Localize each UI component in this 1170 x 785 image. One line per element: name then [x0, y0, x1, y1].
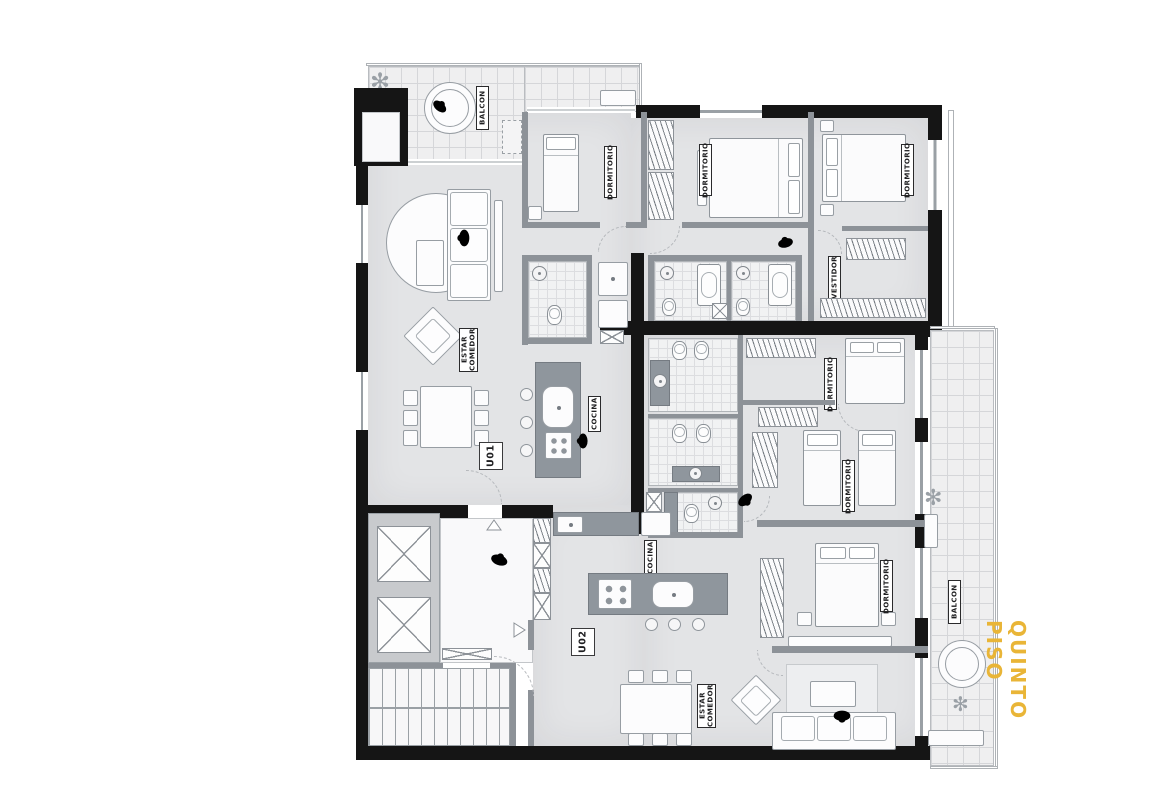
balcony-bench: [924, 514, 938, 548]
wall-segment: [587, 255, 592, 344]
wall-top: [636, 105, 942, 118]
window: [356, 372, 368, 430]
kitchen-sink: [652, 581, 694, 608]
single-bed: [858, 430, 896, 506]
duct-shaft: [533, 518, 551, 543]
bar-stool: [692, 618, 705, 631]
wardrobe: [648, 172, 674, 220]
person-figure: [572, 432, 590, 450]
pillow: [826, 138, 838, 166]
window: [928, 140, 942, 210]
balcony-console: [928, 730, 984, 746]
oven: [598, 262, 628, 296]
room-label-vestidor: VESTIDOR: [828, 256, 841, 300]
pillow: [826, 169, 838, 197]
blanket-line: [846, 356, 904, 357]
sofa-cushion: [781, 716, 815, 741]
dining-chair: [403, 390, 418, 406]
window: [915, 658, 928, 736]
shower-head: [653, 374, 667, 388]
duct-shaft: [533, 543, 551, 568]
elevator-shaft: [377, 597, 431, 653]
wall-segment: [641, 112, 647, 228]
faucet-dot: [557, 406, 561, 410]
pillow: [807, 434, 838, 446]
dining-chair: [652, 733, 668, 746]
bidet: [694, 341, 709, 360]
shower-head: [532, 266, 547, 281]
toilet: [547, 305, 562, 325]
double-bed: [815, 543, 879, 627]
duct-shaft: [712, 303, 728, 319]
shower-head: [708, 496, 722, 510]
dining-table: [620, 684, 692, 734]
bar-stool: [520, 416, 533, 429]
storage-niche: [362, 112, 400, 162]
dining-chair: [676, 733, 692, 746]
clothes-rack: [846, 238, 906, 260]
wall-segment: [743, 400, 835, 405]
bar-stool: [645, 618, 658, 631]
blanket-line: [778, 139, 779, 217]
room-label-dormitorio: DORMITORIO: [604, 146, 617, 198]
room-label-cocina: COCINA: [644, 540, 657, 576]
wardrobe: [760, 558, 784, 638]
wardrobe: [758, 407, 818, 427]
floor-plan-canvas: ✻ BALCON DORMITORIO: [0, 0, 1170, 785]
window: [356, 205, 368, 263]
blanket-line: [804, 450, 840, 451]
coffee-table: [810, 681, 856, 707]
toilet: [736, 298, 750, 316]
wall-segment: [757, 520, 928, 527]
wardrobe: [648, 120, 674, 170]
dining-chair: [676, 670, 692, 683]
bar-stool: [668, 618, 681, 631]
toilet: [672, 424, 687, 443]
coffee-table: [416, 240, 444, 286]
pillow: [849, 547, 875, 559]
pillow: [862, 434, 893, 446]
dining-chair: [474, 410, 489, 426]
bicycle-icon: [948, 366, 974, 424]
bar-stool: [520, 444, 533, 457]
unit-label-u01: U01: [479, 442, 503, 470]
wall-segment: [808, 112, 814, 321]
shower-head: [660, 266, 674, 280]
single-bed: [803, 430, 841, 506]
balcony-right-railing: [995, 328, 998, 768]
bar-stool: [520, 388, 533, 401]
ac-unit-dashed: [502, 120, 522, 154]
tv-console: [494, 200, 503, 292]
hanging-chair: [938, 640, 986, 688]
window: [700, 105, 762, 118]
double-bed: [709, 138, 803, 218]
wall-segment: [522, 222, 600, 228]
room-label-cocina: COCINA: [588, 396, 601, 432]
sofa-cushion: [450, 192, 488, 226]
bathtub: [697, 264, 721, 306]
faucet-dot: [569, 523, 573, 527]
duct-shaft: [600, 330, 624, 344]
dining-chair: [628, 733, 644, 746]
wall-segment: [528, 690, 534, 746]
wall-segment: [522, 338, 592, 344]
armchair-cushion: [415, 318, 452, 355]
wall-segment: [772, 646, 928, 653]
wardrobe: [820, 298, 926, 318]
direction-up-icon: [486, 518, 502, 532]
sofa-cushion: [853, 716, 887, 741]
toilet: [684, 504, 699, 523]
direction-right-icon: [512, 622, 526, 638]
unit-divider-vertical: [631, 253, 644, 534]
double-bed: [822, 134, 906, 202]
room-label-dormitorio: DORMITORIO: [880, 560, 893, 612]
cooktop: [598, 579, 632, 609]
pillow: [788, 180, 800, 214]
single-bed: [543, 134, 579, 212]
wardrobe: [746, 338, 816, 358]
room-label-balcon-top: BALCON: [476, 86, 489, 130]
dining-chair: [652, 670, 668, 683]
staircase: [368, 668, 510, 746]
balcony-bench: [600, 90, 636, 106]
fridge: [641, 512, 671, 536]
nightstand: [820, 120, 834, 132]
room-label-dormitorio: DORMITORIO: [901, 144, 914, 196]
dining-chair: [628, 670, 644, 683]
elevator-shaft: [377, 526, 431, 582]
pillow: [877, 342, 901, 353]
counter-sink: [557, 516, 583, 533]
unit-divider-horizontal: [600, 321, 942, 335]
plant-icon: ✻: [924, 488, 942, 510]
duct-shaft: [646, 492, 662, 512]
stair-landing-line: [369, 707, 509, 709]
window: [915, 548, 928, 618]
cooktop: [545, 432, 572, 459]
pillow: [850, 342, 874, 353]
blanket-line: [841, 135, 842, 201]
blanket-line: [859, 450, 895, 451]
sofa-cushion: [450, 264, 488, 298]
room-label-dormitorio: DORMITORIO: [842, 460, 855, 512]
room-label-estar-comedor: ESTAR COMEDOR: [459, 328, 478, 372]
shower-head: [689, 467, 702, 480]
blanket-line: [816, 563, 878, 564]
wall-segment: [796, 255, 802, 321]
blanket-line: [544, 155, 578, 156]
person-figure: [452, 228, 472, 248]
pillow: [788, 143, 800, 177]
balcony-top-railing: [366, 63, 642, 66]
desk: [752, 432, 778, 488]
room-label-balcon-right: BALCON: [948, 580, 961, 624]
ledge-lines: [948, 110, 954, 328]
balcony-right-railing-top: [930, 326, 995, 329]
pouf: [881, 612, 896, 626]
lobby: [440, 518, 533, 663]
wall-segment: [533, 505, 553, 518]
burner-dot: [611, 277, 615, 281]
shower-head: [736, 266, 750, 280]
door-gap: [468, 505, 502, 518]
armchair-cushion: [740, 684, 773, 717]
wall-segment: [528, 620, 534, 650]
nightstand: [820, 204, 834, 216]
toilet: [672, 341, 687, 360]
wall-segment: [842, 226, 928, 231]
fridge: [598, 300, 628, 328]
floor-title: QUINTO PISO: [1000, 620, 1030, 785]
pillow: [820, 547, 846, 559]
duct-shaft: [533, 593, 551, 620]
unit-label-u02: U02: [571, 628, 595, 656]
plant-icon: ✻: [952, 694, 969, 714]
room-label-dormitorio: DORMITORIO: [699, 144, 712, 196]
hanging-chair-inner: [945, 647, 979, 681]
window: [527, 107, 635, 113]
pouf: [797, 612, 812, 626]
faucet-dot: [672, 593, 676, 597]
toilet: [662, 298, 676, 316]
bicycle-icon: [530, 78, 588, 104]
double-bed: [845, 338, 905, 404]
person-figure: [832, 708, 852, 728]
dining-chair: [403, 410, 418, 426]
bathtub: [768, 264, 792, 306]
window: [915, 350, 928, 418]
kitchen-sink: [542, 386, 574, 428]
bidet: [696, 424, 711, 443]
dining-chair: [403, 430, 418, 446]
ramp: [442, 648, 492, 660]
pillow: [546, 137, 576, 150]
duct-shaft: [533, 568, 551, 593]
dining-table: [420, 386, 472, 448]
room-label-estar-comedor: ESTAR COMEDOR: [697, 684, 716, 728]
balcony-right-railing-bottom: [930, 766, 998, 769]
dining-chair: [474, 390, 489, 406]
nightstand: [528, 206, 542, 220]
wall-segment: [682, 222, 812, 228]
